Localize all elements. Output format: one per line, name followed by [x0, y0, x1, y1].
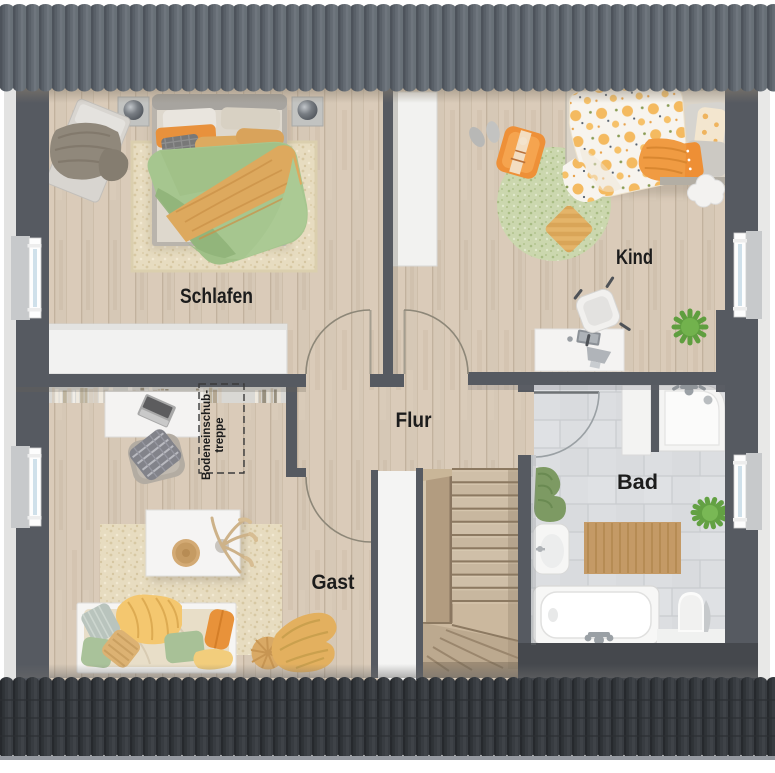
svg-text:Flur: Flur: [396, 409, 432, 432]
svg-text:Schlafen: Schlafen: [180, 285, 253, 308]
svg-text:Bad: Bad: [617, 471, 658, 494]
svg-text:Bodeneinschub-: Bodeneinschub-: [201, 390, 213, 480]
svg-text:treppe: treppe: [214, 417, 226, 452]
svg-text:Gast: Gast: [312, 571, 355, 594]
svg-text:Kind: Kind: [616, 246, 653, 269]
